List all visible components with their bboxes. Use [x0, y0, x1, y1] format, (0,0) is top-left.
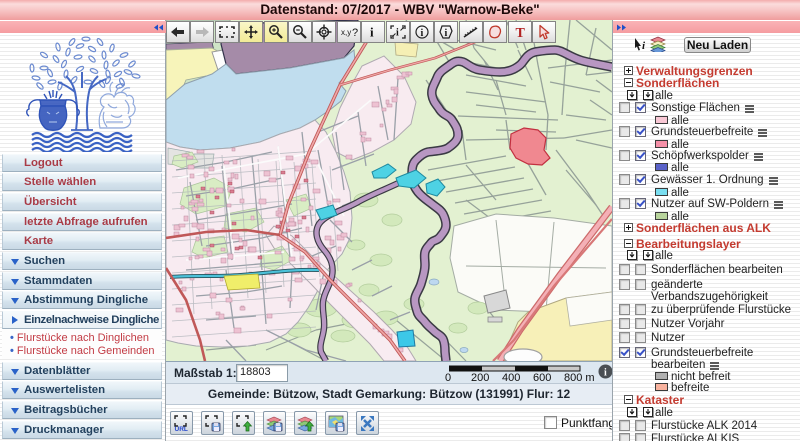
- svg-text:i: i: [445, 28, 448, 39]
- svg-text:i: i: [421, 28, 424, 39]
- svg-text:i: i: [642, 40, 646, 51]
- svg-text:URL: URL: [175, 426, 188, 433]
- svg-text:i: i: [604, 368, 607, 379]
- svg-text:?: ?: [352, 27, 358, 39]
- svg-text:i: i: [396, 28, 399, 39]
- svg-text:x,y: x,y: [341, 28, 351, 37]
- svg-text:T: T: [516, 26, 526, 41]
- svg-text:i: i: [370, 25, 374, 40]
